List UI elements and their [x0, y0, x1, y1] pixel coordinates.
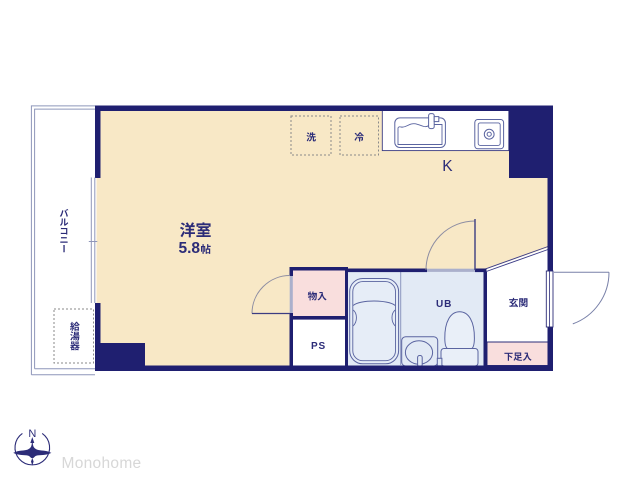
- svg-text:UB: UB: [436, 299, 452, 310]
- svg-text:K: K: [442, 158, 453, 175]
- svg-text:Monohome: Monohome: [62, 455, 142, 472]
- svg-text:PS: PS: [311, 341, 326, 352]
- svg-text:5.8: 5.8: [179, 240, 201, 257]
